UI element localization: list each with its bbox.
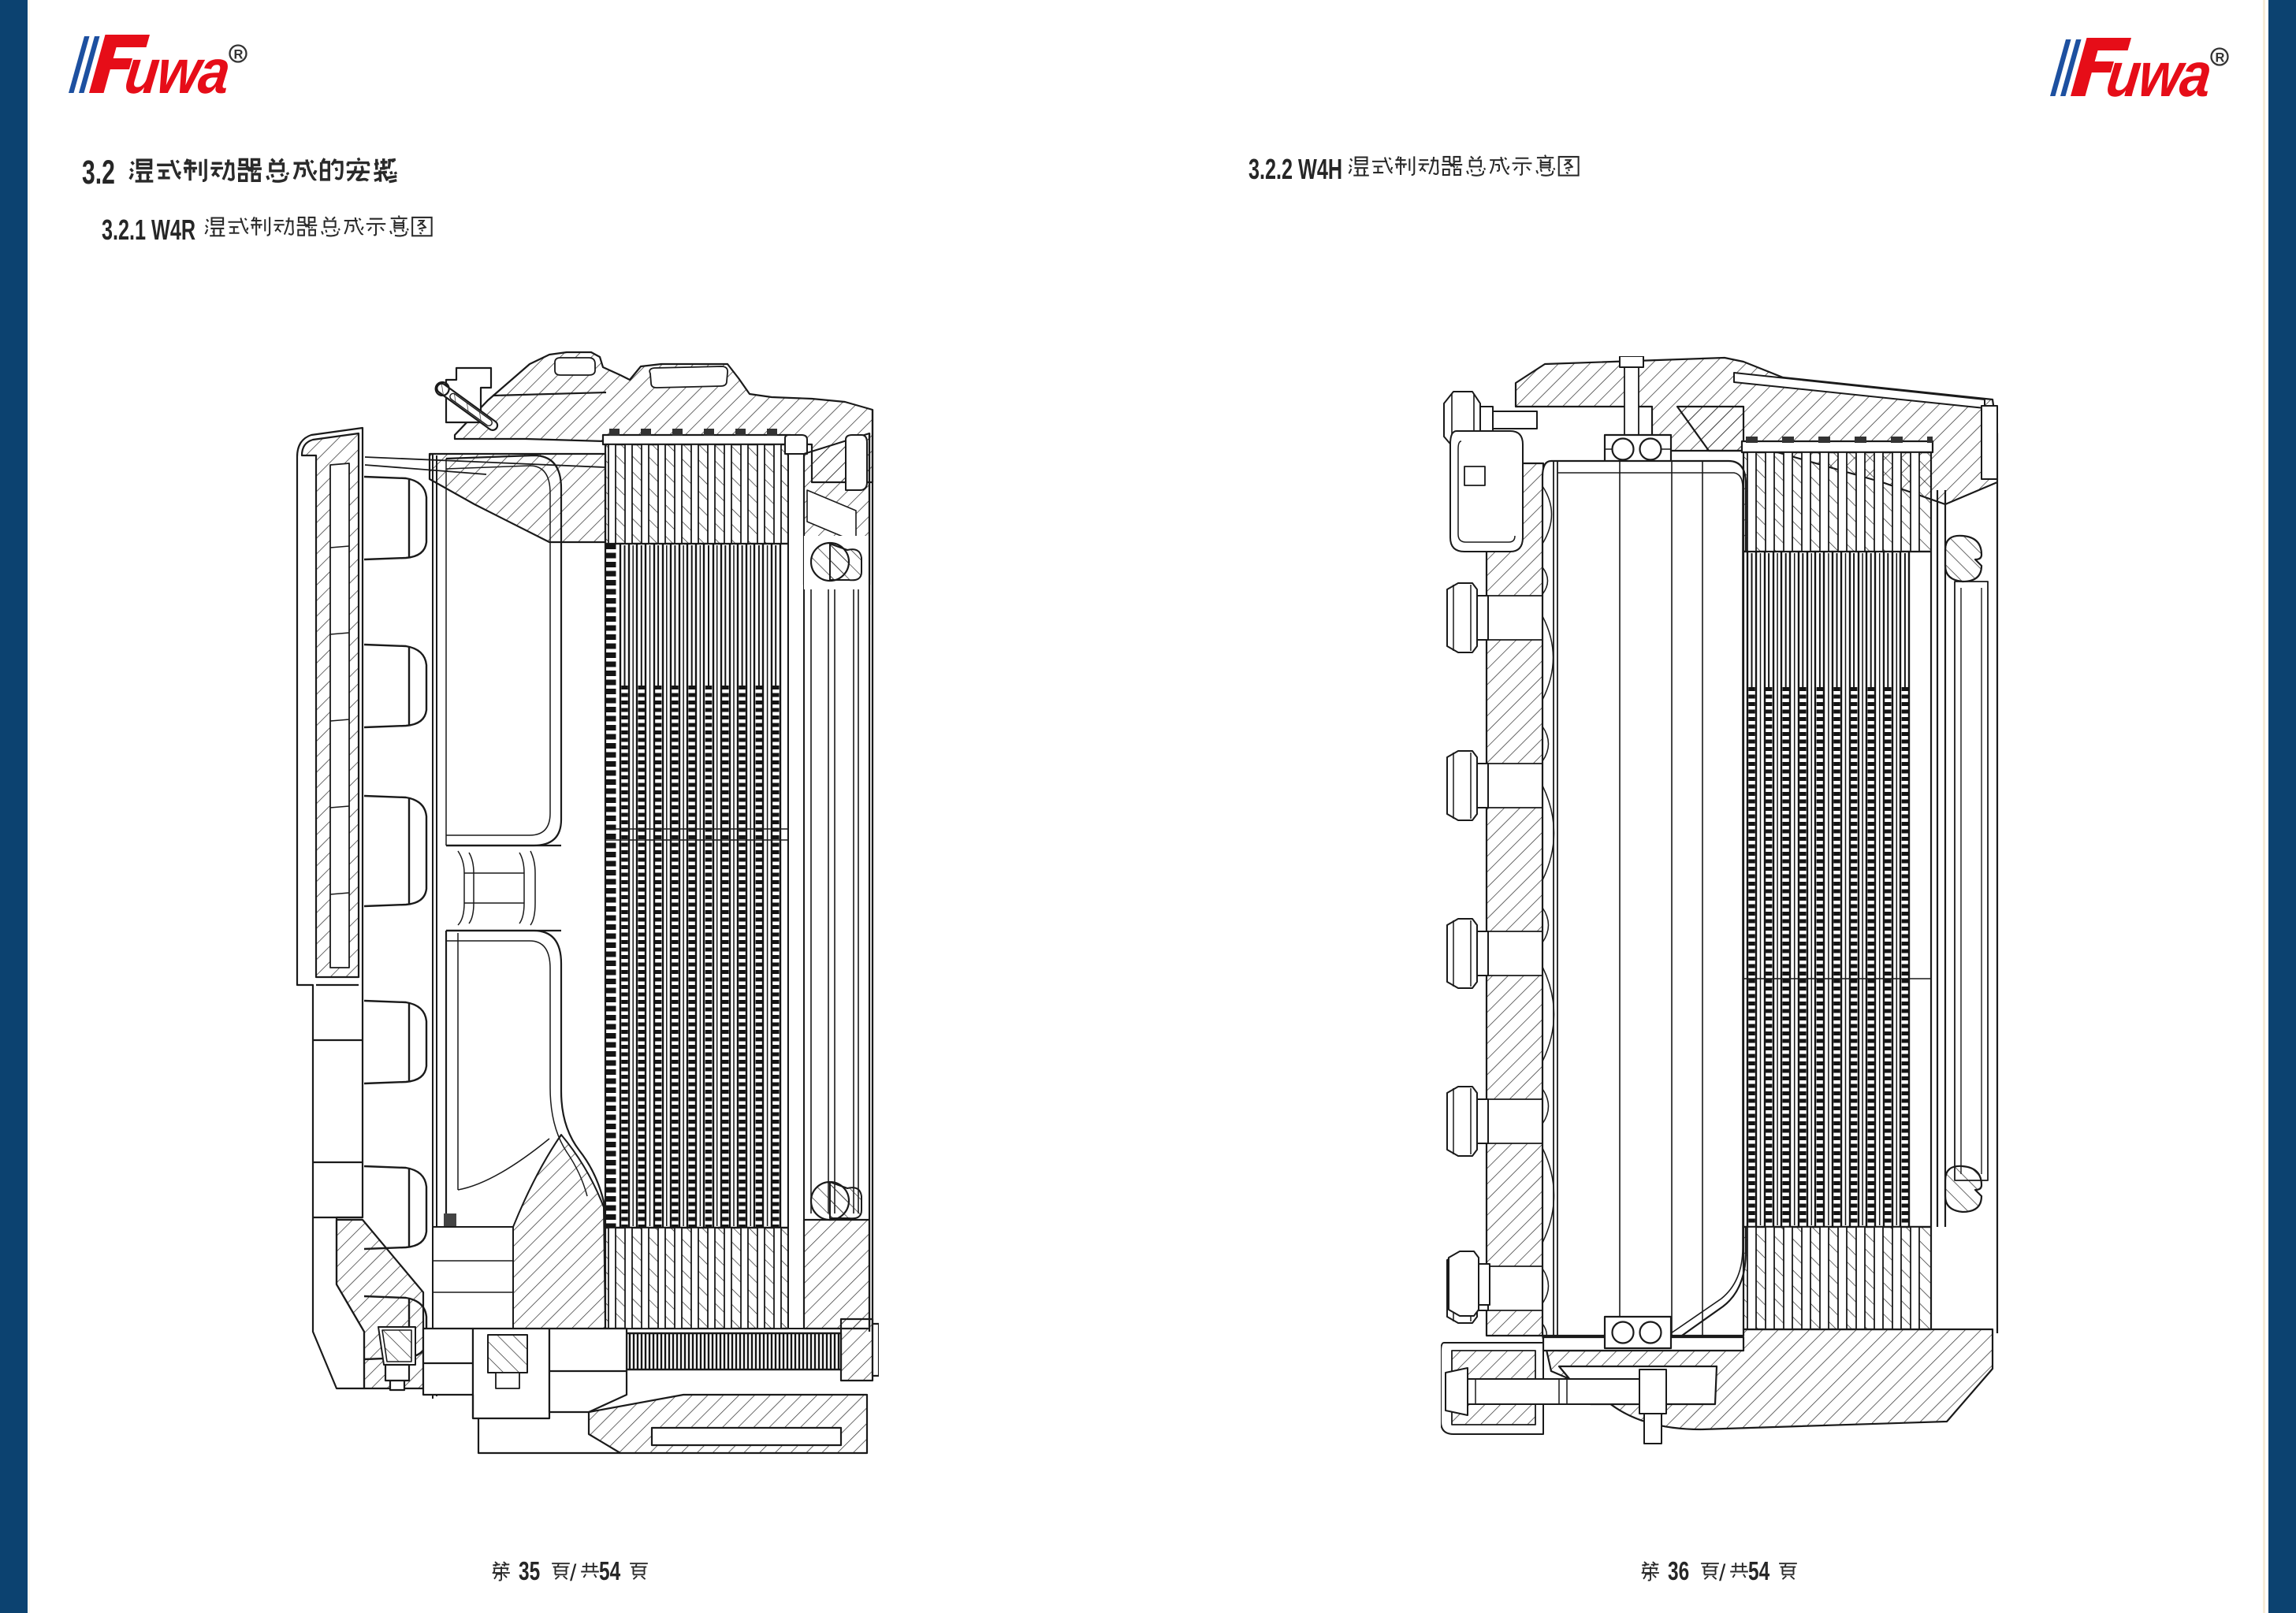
svg-text:uwa: uwa [121, 36, 233, 99]
svg-text:35: 35 [519, 1559, 540, 1585]
svg-text:36: 36 [1668, 1559, 1689, 1585]
svg-text:54: 54 [599, 1559, 620, 1585]
svg-text:54: 54 [1748, 1559, 1769, 1585]
svg-text:R: R [234, 48, 244, 62]
svg-text:/: / [1719, 1560, 1726, 1585]
svg-text:/: / [570, 1560, 577, 1585]
